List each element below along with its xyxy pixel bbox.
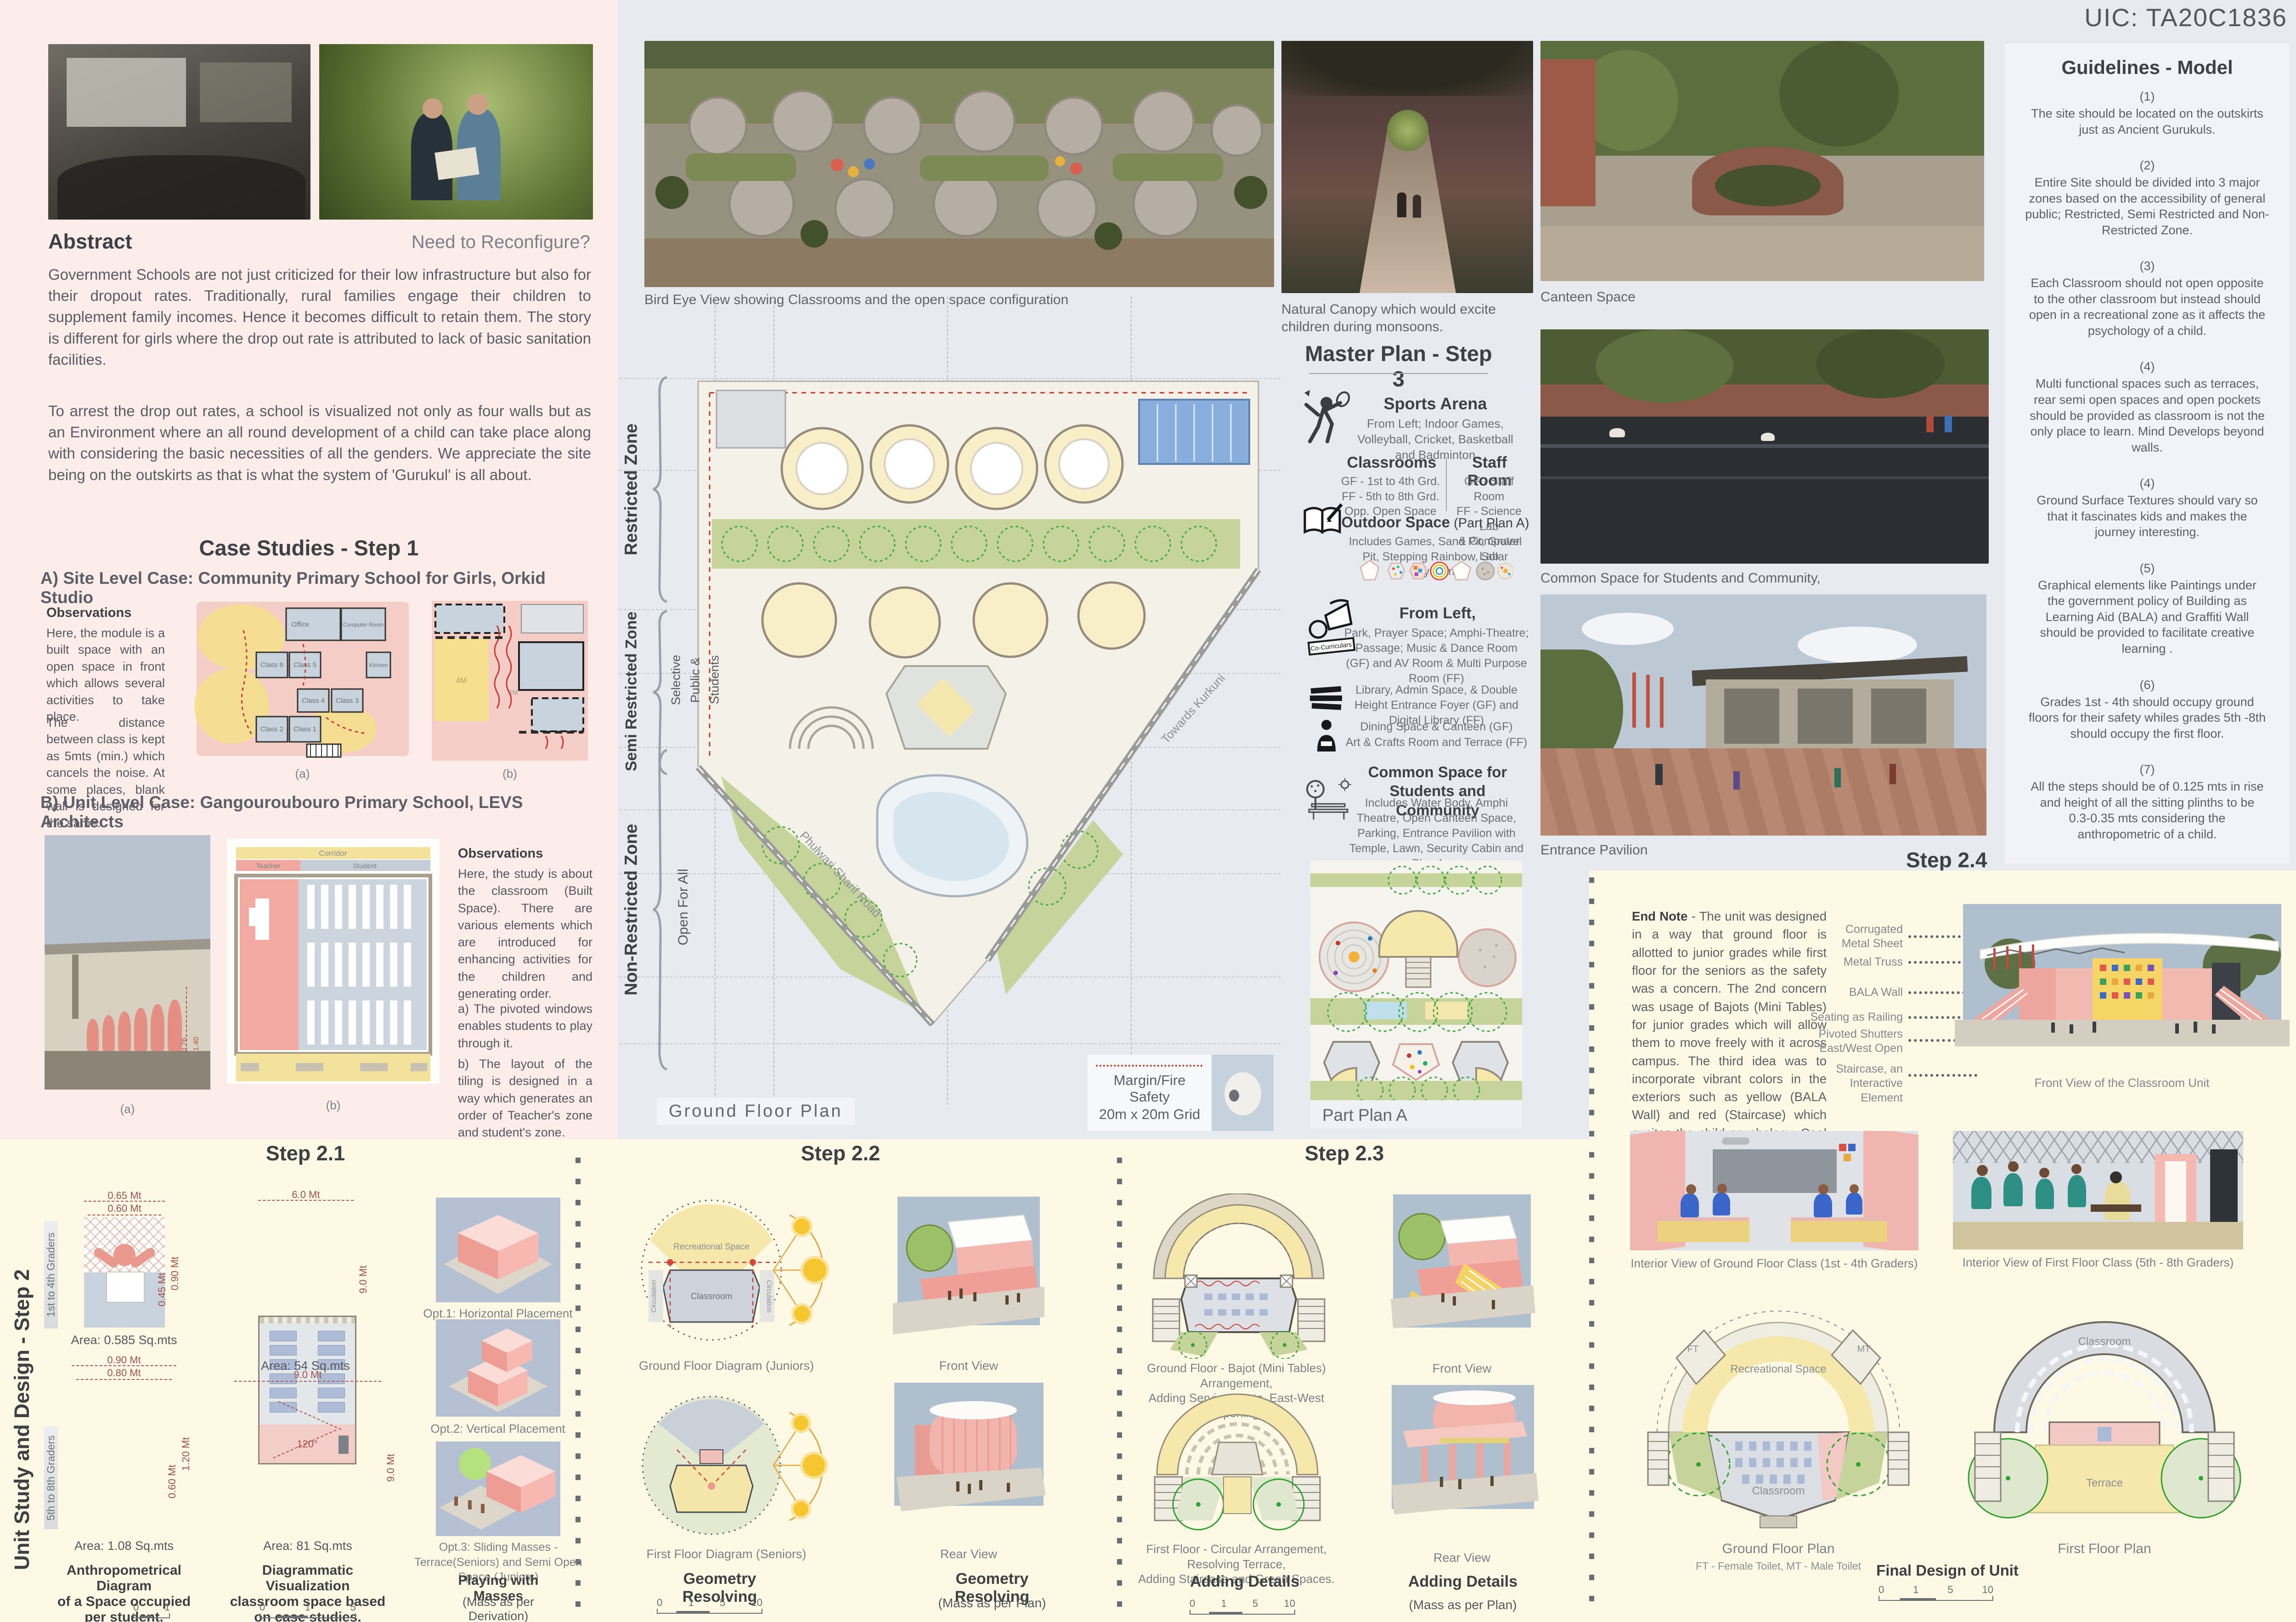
angle-120: 120° bbox=[284, 1438, 330, 1450]
interior-first-floor-render bbox=[1953, 1131, 2243, 1249]
zone-brace-non bbox=[651, 748, 668, 1071]
section-dim-140: 1.40 bbox=[192, 1000, 201, 1051]
dim-045: 0.45 Mt bbox=[156, 1260, 168, 1319]
svg-text:Classroom: Classroom bbox=[691, 1292, 733, 1301]
guidelines-panel: Guidelines - Model (1) The site should b… bbox=[2005, 44, 2290, 864]
legend-fromleft-title: From Left, bbox=[1371, 605, 1504, 622]
zone-label-restricted: Restricted Zone bbox=[621, 375, 642, 604]
guideline-item: (4) Ground Surface Textures should vary … bbox=[2005, 476, 2290, 540]
final-design-title: Final Design of Unit bbox=[1856, 1562, 2039, 1579]
dim-060: 0.60 Mt bbox=[84, 1203, 165, 1215]
svg-text:Student: Student bbox=[353, 862, 377, 870]
unit-study-vertical-title: Unit Study and Design - Step 2 bbox=[8, 1240, 36, 1599]
bird-eye-view-render bbox=[644, 41, 1274, 287]
legend-dining-line1: Dining Space & Canteen (GF) bbox=[1343, 720, 1529, 734]
part-plan-a-caption: Part Plan A bbox=[1310, 1100, 1522, 1125]
svg-text:Corridor: Corridor bbox=[319, 849, 347, 858]
elevation-caption: Front View of the Classroom Unit bbox=[2003, 1076, 2241, 1090]
annotation-leader bbox=[1908, 1074, 1977, 1077]
observations-b-text-3: b) The layout of the tiling is designed … bbox=[458, 1056, 592, 1141]
classroom-diagram-junior: 120° bbox=[258, 1316, 356, 1464]
step-2-4-title: Step 2.4 bbox=[1906, 848, 1987, 872]
zone-sublabel-open-for-all: Open For All bbox=[675, 852, 692, 962]
caption-rear-view-22: Rear View bbox=[916, 1546, 1021, 1562]
interior-ground-floor-render bbox=[1630, 1131, 1918, 1250]
ff-circular-plan bbox=[1143, 1387, 1331, 1543]
guideline-item: (5) Graphical elements like Paintings un… bbox=[2005, 561, 2290, 657]
dim-120: 1.20 Mt bbox=[180, 1401, 192, 1507]
step21-caption-left: Anthropometrical Diagram of a Space occu… bbox=[55, 1563, 193, 1622]
caption-final-gf: Ground Floor Plan bbox=[1634, 1540, 1923, 1558]
observations-a-text-1: Here, the module is a built space with a… bbox=[46, 625, 165, 725]
dining-person-icon bbox=[1313, 719, 1340, 752]
scale-bar: 01510 bbox=[657, 1597, 762, 1614]
geometry-rear-view bbox=[887, 1383, 1050, 1532]
guideline-item: (7) All the steps should be of 0.125 mts… bbox=[2005, 763, 2290, 842]
dim-line bbox=[88, 1215, 161, 1215]
svg-text:Teacher: Teacher bbox=[256, 862, 280, 870]
common-space-caption: Common Space for Students and Community, bbox=[1540, 570, 1989, 587]
scale-bar: 01510 bbox=[1190, 1598, 1295, 1615]
ground-floor-plan-label: Ground Floor Plan bbox=[657, 1098, 855, 1125]
dim-065: 0.65 Mt bbox=[84, 1190, 165, 1202]
caption-gf-diagram-juniors: Ground Floor Diagram (Juniors) bbox=[622, 1358, 831, 1374]
grade-bar-senior: 5th to 8th Graders bbox=[44, 1426, 58, 1529]
zone-brace-restricted bbox=[651, 375, 668, 604]
svg-text:Classroom: Classroom bbox=[2078, 1335, 2131, 1348]
need-to-reconfigure: Need to Reconfigure? bbox=[294, 232, 590, 253]
master-plan-title: Master Plan - Step 3 bbox=[1304, 341, 1493, 391]
master-plan-drawing: Towards Kurkuni Phulwari Sharif Road bbox=[684, 372, 1277, 1116]
adding-details-left: Adding Details bbox=[1190, 1573, 1300, 1591]
dim-090b: 0.90 Mt bbox=[72, 1354, 176, 1366]
svg-text:Circulation: Circulation bbox=[765, 1280, 773, 1313]
dim-line bbox=[258, 1200, 354, 1201]
guidelines-title: Guidelines - Model bbox=[2005, 44, 2290, 79]
section-dim-076: 0.76 bbox=[181, 1015, 189, 1052]
annotation-staircase: Staircase, an Interactive Element bbox=[1826, 1062, 1903, 1105]
photo-entrance-pavilion bbox=[1540, 594, 1986, 836]
bird-eye-caption: Bird Eye View showing Classrooms and the… bbox=[644, 291, 1274, 309]
adding-details-rear-view bbox=[1385, 1385, 1541, 1537]
figure-label-b: (b) bbox=[427, 766, 592, 782]
legend-classrooms-title: Classrooms bbox=[1346, 454, 1438, 472]
svg-text:Kitchen: Kitchen bbox=[369, 662, 388, 668]
case-b-section-drawing: 0.76 1.40 bbox=[45, 835, 210, 1090]
case-b-classroom-plan: Corridor Teacher Student bbox=[227, 839, 440, 1084]
mass-as-per-plan-23: (Mass as per Plan) bbox=[1403, 1598, 1523, 1612]
figure-label-a: (a) bbox=[188, 766, 417, 782]
photo-canteen-space bbox=[1540, 41, 1984, 281]
first-floor-diagram-seniors bbox=[622, 1392, 831, 1539]
svg-text:Class 3: Class 3 bbox=[336, 697, 359, 705]
svg-text:Recreational Space: Recreational Space bbox=[673, 1242, 750, 1252]
dotted-divider bbox=[1117, 1158, 1122, 1610]
caption-front-view-22: Front View bbox=[916, 1358, 1021, 1374]
dim-9mt-c: 9.0 Mt bbox=[385, 1429, 397, 1507]
dim-090: 0.90 Mt bbox=[169, 1227, 181, 1319]
gf-bajot-plan bbox=[1145, 1193, 1333, 1359]
legend-dining-line2: Art & Crafts Room and Terrace (FF) bbox=[1343, 736, 1529, 749]
grade-bar-junior: 1st to 4th Graders bbox=[44, 1221, 58, 1328]
legend-divider bbox=[1446, 457, 1447, 511]
scale-bar: 01 bbox=[133, 1601, 170, 1618]
anthro-diagram-junior bbox=[84, 1217, 165, 1328]
svg-text:4M: 4M bbox=[456, 676, 467, 685]
ground-floor-diagram-juniors: Recreational Space Classroom Circulation… bbox=[622, 1194, 831, 1346]
case-a-site-plan-a: Office Computer Room Class 6 Class 5 Kit… bbox=[188, 598, 417, 763]
final-ground-floor-plan: Recreational Space Classroom FT MT bbox=[1634, 1281, 1923, 1531]
area-108: Area: 1.08 Sq.mts bbox=[60, 1539, 188, 1553]
area-0585: Area: 0.585 Sq.mts bbox=[69, 1333, 179, 1347]
guideline-item: (3) Each Classroom should not open oppos… bbox=[2005, 259, 2290, 339]
abstract-paragraph-2: To arrest the drop out rates, a school i… bbox=[48, 401, 591, 486]
abstract-title: Abstract bbox=[48, 230, 132, 254]
step21-caption-right-sub: (Mass as per Derivation) bbox=[436, 1595, 560, 1622]
photo-common-space bbox=[1540, 329, 1989, 564]
margin-fire-safety-label: Margin/Fire Safety bbox=[1092, 1072, 1207, 1105]
case-b-title: B) Unit Level Case: Gangouroubouro Prima… bbox=[40, 793, 598, 831]
caption-rear-view-23: Rear View bbox=[1409, 1550, 1515, 1566]
classroom-unit-front-elevation bbox=[1955, 904, 2290, 1072]
opt1-diagram bbox=[436, 1198, 560, 1302]
svg-text:Circulation: Circulation bbox=[650, 1280, 658, 1313]
caption-interior-ff: Interior View of First Floor Class (5th … bbox=[1953, 1255, 2243, 1271]
svg-text:MT: MT bbox=[1857, 1344, 1871, 1354]
zone-sublabel-selective: Selective bbox=[668, 639, 684, 721]
outdoor-space-chips bbox=[1359, 560, 1513, 582]
part-plan-a-drawing bbox=[1310, 860, 1522, 1100]
svg-text:Computer Room: Computer Room bbox=[343, 622, 384, 628]
svg-text:Class 6: Class 6 bbox=[260, 661, 283, 669]
observations-b-text-2: a) The pivoted windows enables students … bbox=[458, 1000, 592, 1052]
guideline-item: (6) Grades 1st - 4th should occupy groun… bbox=[2005, 678, 2290, 742]
zone-sublabel-public: Public & bbox=[688, 639, 703, 721]
annotation-corrugated: Corrugated Metal Sheet bbox=[1830, 922, 1903, 951]
annotation-pivoted-shutters: Pivoted Shutters East/West Open bbox=[1809, 1027, 1903, 1056]
adding-details-front-view bbox=[1386, 1194, 1538, 1355]
sports-icon bbox=[1300, 387, 1350, 447]
guideline-item: (1) The site should be located on the ou… bbox=[2005, 90, 2290, 137]
legend-classrooms-lines: GF - 1st to 4th Grd.FF - 5th to 8th Grd.… bbox=[1339, 474, 1442, 519]
caption-final-ff: First Floor Plan bbox=[1966, 1540, 2243, 1558]
canteen-caption: Canteen Space bbox=[1540, 288, 1984, 306]
step-2-1-title: Step 2.1 bbox=[257, 1142, 354, 1165]
observations-b-text-1: Here, the study is about the classroom (… bbox=[458, 865, 592, 1002]
annotation-metal-truss: Metal Truss bbox=[1812, 955, 1903, 969]
photo-bw-classroom bbox=[48, 44, 310, 220]
caption-ff-diagram-seniors: First Floor Diagram (Seniors) bbox=[622, 1546, 831, 1562]
grid-size-label: 20m x 20m Grid bbox=[1092, 1106, 1207, 1123]
master-plan-title-rule bbox=[1309, 373, 1488, 374]
opt2-diagram bbox=[436, 1319, 560, 1417]
annotation-seating-railing: Seating as Railing bbox=[1794, 1011, 1903, 1024]
dotted-divider bbox=[1589, 877, 1594, 1610]
case-studies-title: Case Studies - Step 1 bbox=[0, 535, 618, 560]
observations-a-title: Observations bbox=[46, 605, 131, 621]
books-stack-icon bbox=[1308, 684, 1345, 713]
figure-label-b2: (b) bbox=[227, 1098, 440, 1113]
dim-9mt: 9.0 Mt bbox=[357, 1240, 369, 1318]
svg-text:FT: FT bbox=[1687, 1344, 1698, 1354]
part-plan-a-caption-bar: Part Plan A bbox=[1310, 1100, 1522, 1129]
adding-details-right: Adding Details bbox=[1408, 1573, 1518, 1591]
canopy-caption: Natural Canopy which would excite childr… bbox=[1281, 301, 1520, 335]
final-first-floor-plan: Classroom Terrace bbox=[1966, 1281, 2243, 1531]
margin-fire-safety-thumb bbox=[1212, 1055, 1274, 1131]
dim-9mt-b: 9.0 Mt bbox=[234, 1369, 381, 1381]
case-a-site-plan-b: 4M 1M bbox=[427, 598, 592, 763]
zone-label-semi-restricted: Semi Restricted Zone bbox=[621, 588, 642, 795]
svg-text:Terrace: Terrace bbox=[2086, 1477, 2123, 1489]
dim-080: 0.80 Mt bbox=[72, 1367, 176, 1379]
observations-b-title: Observations bbox=[458, 846, 543, 861]
geometry-front-view bbox=[893, 1197, 1044, 1351]
dim-line bbox=[76, 1379, 172, 1380]
zone-label-non-restricted: Non-Restricted Zone bbox=[621, 772, 642, 1047]
step-2-2-title: Step 2.2 bbox=[792, 1142, 889, 1165]
dim-line bbox=[234, 1381, 381, 1382]
legend-fromleft-body: Park, Prayer Space; Amphi-Theatre; Passa… bbox=[1343, 626, 1529, 686]
step-2-3-title: Step 2.3 bbox=[1296, 1142, 1393, 1165]
presentation-board: UIC: TA20C1836 Abstract Need to Reconfig… bbox=[0, 0, 2296, 1622]
photo-natural-canopy bbox=[1281, 41, 1533, 293]
svg-text:Classroom: Classroom bbox=[1752, 1485, 1805, 1497]
annotation-bala-wall: BALA Wall bbox=[1821, 986, 1903, 999]
margin-fire-safety-box: Margin/Fire Safety 20m x 20m Grid bbox=[1088, 1055, 1212, 1131]
guideline-item: (4) Multi functional spaces such as terr… bbox=[2005, 360, 2290, 455]
photo-children-reading bbox=[319, 44, 593, 220]
svg-text:Class 2: Class 2 bbox=[260, 725, 283, 733]
caption-interior-gf: Interior View of Ground Floor Class (1st… bbox=[1630, 1256, 1918, 1272]
svg-text:Class 4: Class 4 bbox=[302, 697, 325, 705]
legend-sports-title: Sports Arena bbox=[1355, 394, 1516, 413]
guideline-item: (2) Entire Site should be divided into 3… bbox=[2005, 158, 2290, 238]
opt2-caption: Opt.2: Vertical Placement bbox=[417, 1421, 578, 1437]
svg-text:Class 1: Class 1 bbox=[293, 725, 316, 733]
figure-label-a2: (a) bbox=[45, 1102, 210, 1117]
svg-text:Office: Office bbox=[292, 621, 310, 628]
scale-bar: 01510 bbox=[1879, 1584, 1993, 1601]
book-pencil-icon bbox=[1301, 502, 1345, 538]
area-81: Area: 81 Sq.mts bbox=[243, 1539, 372, 1553]
zone-sublabel-students: Students bbox=[707, 639, 722, 721]
dim-line bbox=[84, 1201, 165, 1202]
svg-text:Recreational Space: Recreational Space bbox=[1730, 1363, 1826, 1375]
abstract-paragraph-1: Government Schools are not just criticiz… bbox=[48, 264, 591, 370]
mass-as-per-plan-22: (Mass as per Plan) bbox=[928, 1596, 1056, 1611]
legend-outdoor-title: Outdoor Space (Part Plan A) bbox=[1341, 514, 1529, 531]
scale-bar: 015 bbox=[259, 1601, 356, 1618]
dim-6mt: 6.0 Mt bbox=[258, 1189, 354, 1201]
opt3-diagram bbox=[436, 1441, 560, 1536]
dim-line bbox=[72, 1365, 176, 1366]
dim-060b: 0.60 Mt bbox=[166, 1447, 178, 1516]
caption-front-view-23: Front View bbox=[1409, 1361, 1515, 1377]
uic-code: UIC: TA20C1836 bbox=[1920, 3, 2287, 32]
